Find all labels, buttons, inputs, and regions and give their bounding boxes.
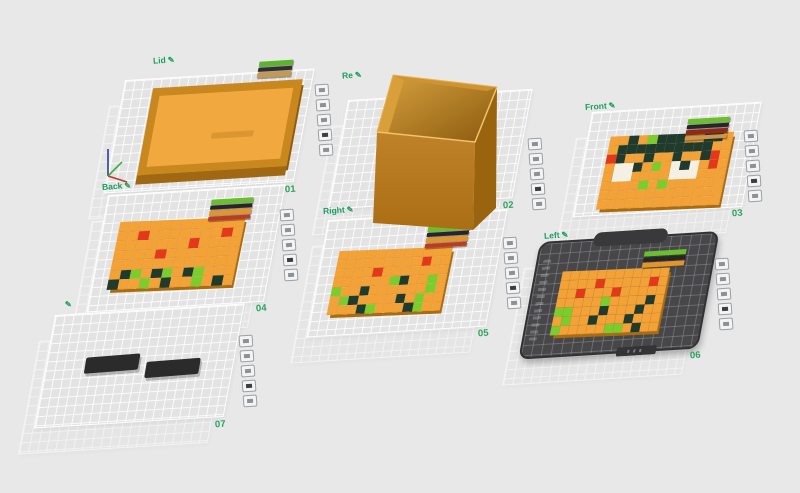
plate-6-name-label: Left✎ [544,229,569,241]
tray-floor [146,88,293,167]
plate-1-toolbar [315,84,334,157]
plate-5-build-plate[interactable] [306,209,507,338]
plate-7-toolbar [239,335,258,408]
box-model[interactable] [348,20,518,200]
plate-6-model[interactable] [550,267,670,335]
edit-plate-name-icon[interactable]: ✎ [65,300,72,309]
plate-5-tilt [306,209,507,338]
model-pixel [434,283,445,293]
arrange-plate-button[interactable] [746,160,761,173]
lock-plate-button[interactable] [528,138,543,151]
plate-6-number: 06 [690,350,701,362]
plate-2-number: 02 [503,200,514,212]
model-pixel [709,196,720,206]
lock-plate-button[interactable] [315,84,330,97]
delete-plate-button[interactable] [284,268,299,281]
axis-x [108,176,127,182]
plate-6-toolbar [715,258,734,331]
model-pixel [223,265,235,275]
plate-4: Back✎04 [108,195,286,311]
plate-5-toolbar [503,237,522,310]
rename-plate-button[interactable] [318,128,333,141]
plate-5-model[interactable] [327,247,453,315]
filament-swatch-stack[interactable] [642,249,687,267]
plate-settings-button[interactable] [745,145,760,158]
plate-name-text: Right [323,205,345,216]
lock-plate-button[interactable] [715,258,730,271]
model-pixel [221,275,233,285]
plate-5-name-label: Right✎ [323,204,354,216]
plate-4-tilt [86,184,285,312]
plate-4-number: 04 [256,303,267,315]
edit-plate-name-icon[interactable]: ✎ [608,100,615,109]
plate-7: ✎07 [55,315,245,427]
delete-plate-button[interactable] [748,189,763,202]
model-pixel [652,304,663,313]
filament-swatch-stack[interactable] [208,197,254,221]
edit-plate-name-icon[interactable]: ✎ [167,55,174,64]
model-pixel [442,247,453,257]
model-pixel [648,322,659,331]
model-pixel [719,150,730,160]
model-pixel [438,265,449,275]
plate-2: Re✎02 [348,100,533,208]
delete-plate-button[interactable] [719,317,734,330]
arrange-plate-button[interactable] [717,288,732,301]
plate-settings-button[interactable] [716,273,731,286]
plate-7-tilt [34,303,245,428]
lock-plate-button[interactable] [744,130,759,143]
arrange-plate-button[interactable] [241,365,256,378]
arrange-plate-button[interactable] [530,168,545,181]
model-pixel [440,256,451,266]
plate-settings-button[interactable] [529,153,544,166]
model-pixel [650,313,661,322]
model-pixel [713,177,724,187]
plate-4-model[interactable] [107,217,246,289]
model-pixel [225,256,237,266]
delete-plate-button[interactable] [319,143,334,156]
plate-3-model[interactable] [596,132,734,210]
model-pixel [717,159,728,169]
filament-swatch-stack[interactable] [257,60,294,78]
plate-1-name-label: Lid✎ [153,54,175,65]
plate-settings-button[interactable] [240,350,255,363]
arrange-plate-button[interactable] [317,114,332,127]
plate-7-number: 07 [215,419,226,431]
arrange-plate-button[interactable] [282,239,297,252]
model-pixel [711,186,722,196]
rename-plate-button[interactable] [283,253,298,266]
rename-plate-button[interactable] [506,281,521,294]
plate-name-text: Left [544,230,560,241]
rename-plate-button[interactable] [531,182,546,195]
rename-plate-button[interactable] [747,174,762,187]
plate-2-toolbar [528,138,547,211]
model-pixel [654,295,665,304]
axis-y [108,162,122,176]
edit-plate-name-icon[interactable]: ✎ [346,204,353,213]
plate-1-number: 01 [285,184,296,196]
model-pixel [657,276,668,285]
filament-swatch-stack[interactable] [684,117,730,141]
plate-5-number: 05 [478,328,489,340]
plate-1-model[interactable] [137,79,303,175]
rename-plate-button[interactable] [242,379,257,392]
model-pixel [715,168,726,178]
delete-plate-button[interactable] [532,197,547,210]
plate-name-text: Front [585,101,607,112]
delete-plate-button[interactable] [507,296,522,309]
plate-7-build-plate[interactable] [34,303,245,428]
plate-3-number: 03 [732,208,743,220]
lock-plate-button[interactable] [280,209,295,222]
axis-gizmo [96,136,136,184]
delete-plate-button[interactable] [243,394,258,407]
viewport: Lid✎01Re✎02Front✎03Back✎04Right✎05Left✎0… [0,0,800,493]
plate-settings-button[interactable] [281,224,296,237]
plate-3: Front✎03 [592,112,762,216]
plate-3-name-label: Front✎ [585,100,616,112]
model-pixel [432,292,443,302]
plate-5: Right✎05 [328,220,508,336]
plate-4-toolbar [280,209,299,282]
plate-6: Left✎06 [540,242,720,358]
edit-plate-name-icon[interactable]: ✎ [561,230,568,239]
lock-plate-button[interactable] [239,335,254,348]
plate-settings-button[interactable] [316,99,331,112]
model-pixel [231,227,243,237]
plate-settings-button[interactable] [504,252,519,265]
model-pixel [659,267,670,276]
plate-6-build-plate[interactable] [518,231,719,360]
plate-3-tilt [572,102,761,218]
model-pixel [229,236,241,246]
lock-plate-button[interactable] [503,237,518,250]
plate-4-build-plate[interactable] [86,184,285,312]
plate-1: Lid✎01 [125,80,315,192]
model-pixel [436,274,447,284]
plate-6-tilt [518,231,719,360]
rename-plate-button[interactable] [718,302,733,315]
plate-name-text: Lid [153,55,166,66]
plate-3-build-plate[interactable] [572,102,761,218]
model-pixel [227,246,239,256]
model-pixel [430,301,441,311]
arrange-plate-button[interactable] [505,267,520,280]
plate-7-name-label: ✎ [63,300,72,310]
model-pixel [720,141,731,151]
model-pixel [656,285,667,294]
plate-3-toolbar [744,130,763,203]
